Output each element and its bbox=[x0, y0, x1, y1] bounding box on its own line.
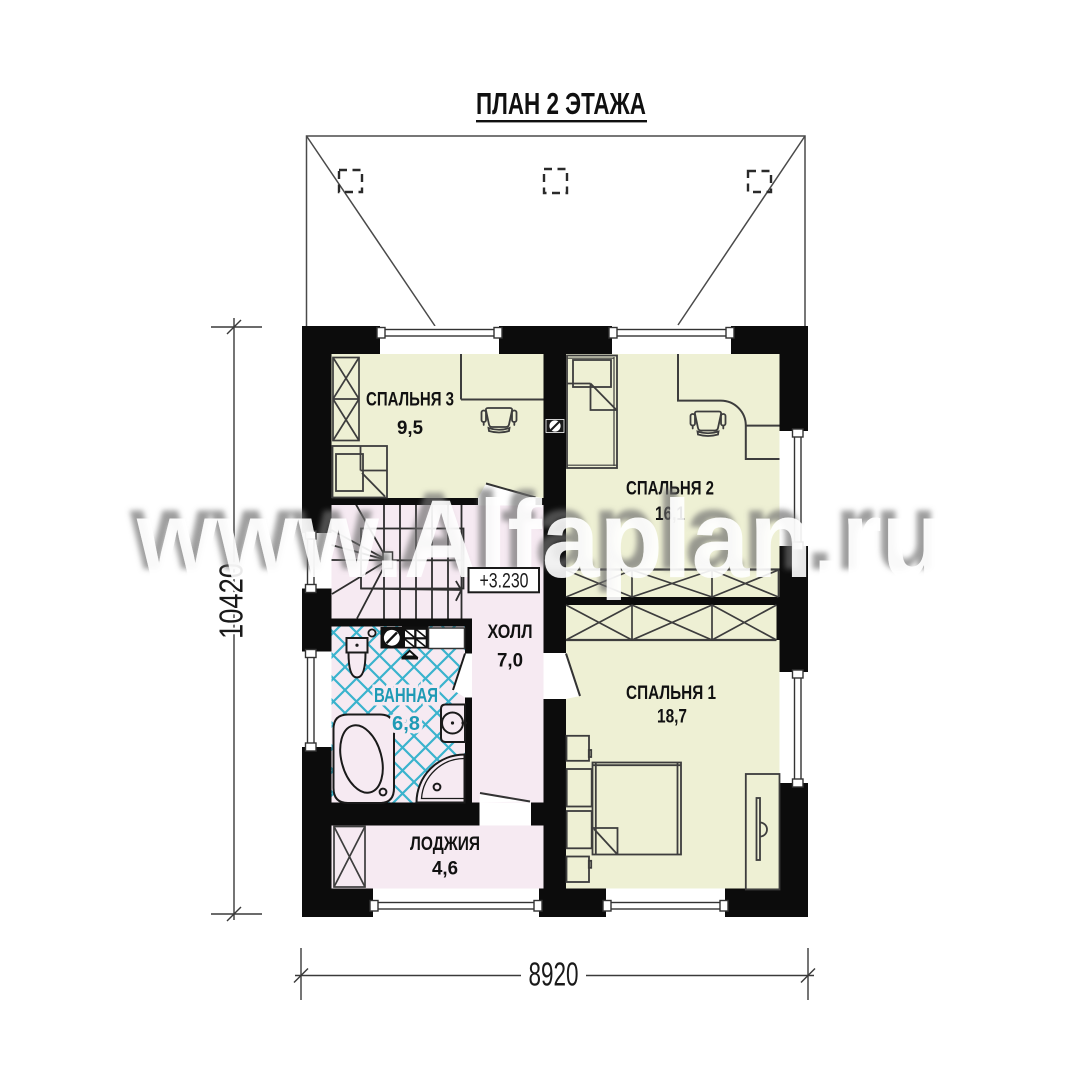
svg-text:ЛОДЖИЯ: ЛОДЖИЯ bbox=[410, 834, 480, 855]
svg-text:СПАЛЬНЯ 1: СПАЛЬНЯ 1 bbox=[626, 683, 716, 704]
svg-text:СПАЛЬНЯ 3: СПАЛЬНЯ 3 bbox=[366, 390, 454, 411]
svg-text:6,8: 6,8 bbox=[392, 712, 420, 735]
svg-text:18,7: 18,7 bbox=[657, 707, 687, 728]
svg-text:4,6: 4,6 bbox=[432, 859, 458, 880]
svg-text:ПЛАН 2 ЭТАЖА: ПЛАН 2 ЭТАЖА bbox=[476, 87, 646, 121]
svg-text:8920: 8920 bbox=[529, 956, 579, 993]
svg-text:ХОЛЛ: ХОЛЛ bbox=[488, 622, 533, 643]
svg-text:9,5: 9,5 bbox=[397, 418, 423, 439]
svg-text:+3.230: +3.230 bbox=[480, 570, 529, 593]
svg-text:7,0: 7,0 bbox=[497, 651, 523, 672]
svg-text:ВАННАЯ: ВАННАЯ bbox=[374, 684, 438, 707]
svg-text:www.Alfaplan.ru: www.Alfaplan.ru bbox=[136, 478, 945, 601]
